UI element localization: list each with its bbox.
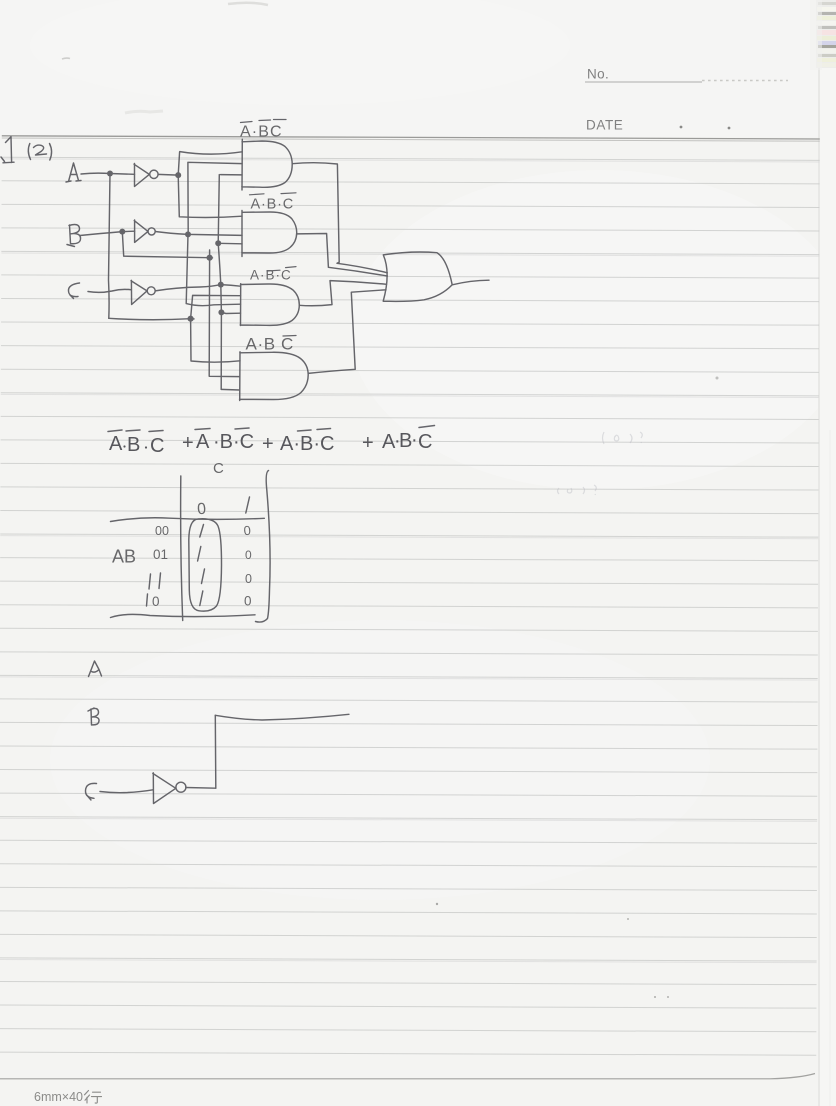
svg-text:A·B·C: A·B·C xyxy=(280,433,334,455)
svg-text:+: + xyxy=(182,432,194,454)
svg-text:·: · xyxy=(411,429,418,451)
svg-text:0: 0 xyxy=(197,501,207,519)
svg-text:AB: AB xyxy=(112,547,136,567)
svg-text:0: 0 xyxy=(244,594,252,609)
svg-text:DATE: DATE xyxy=(586,118,623,133)
svg-text:0: 0 xyxy=(152,594,160,609)
svg-text:A·B·C: A·B·C xyxy=(251,197,294,213)
svg-text:6mm×40: 6mm×40 xyxy=(34,1090,83,1104)
svg-text:A·BC: A·BC xyxy=(240,124,283,141)
svg-text:01: 01 xyxy=(153,547,168,562)
svg-text:C: C xyxy=(418,431,432,453)
svg-text:A: A xyxy=(109,433,123,455)
svg-text:·B·C: ·B·C xyxy=(213,431,254,453)
svg-text:00: 00 xyxy=(155,524,169,538)
svg-text:C: C xyxy=(213,460,224,477)
svg-text:C: C xyxy=(150,435,164,457)
svg-text:No.: No. xyxy=(587,67,609,82)
svg-text:+: + xyxy=(362,432,374,454)
svg-text:0: 0 xyxy=(245,572,252,586)
svg-text:0: 0 xyxy=(245,548,252,562)
svg-text:A·B·C: A·B·C xyxy=(250,268,292,283)
svg-text:0: 0 xyxy=(243,523,252,539)
svg-text:A: A xyxy=(196,431,210,453)
svg-text:B: B xyxy=(127,434,140,456)
svg-text:+: + xyxy=(262,433,274,455)
svg-text:A·B C: A·B C xyxy=(246,335,294,354)
